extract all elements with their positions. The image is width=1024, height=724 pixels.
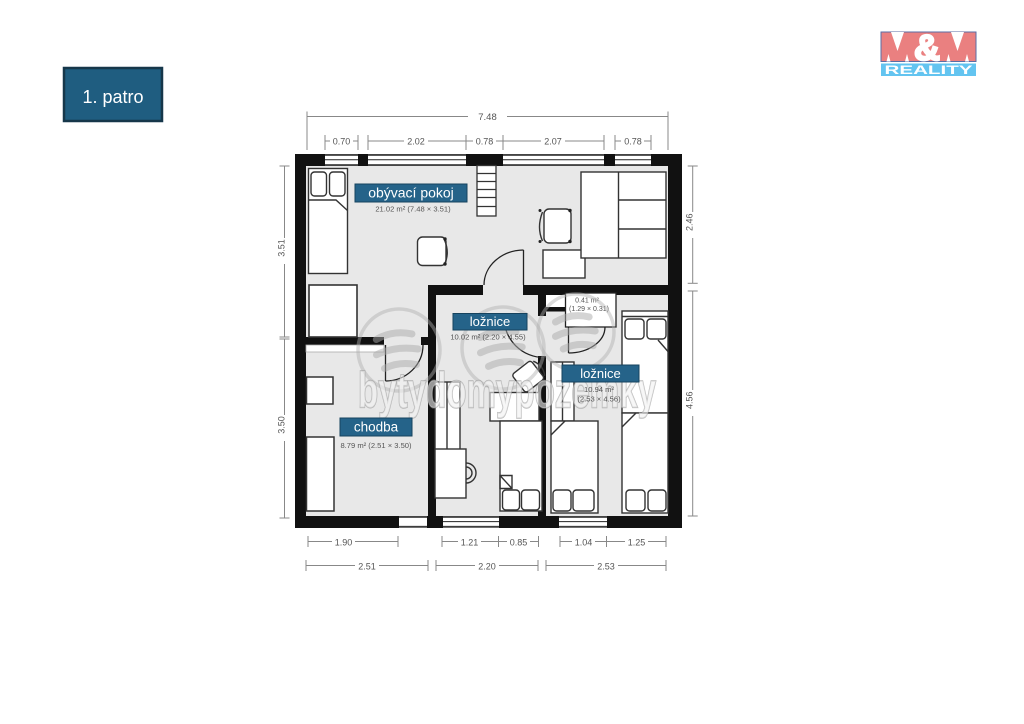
svg-text:1.90: 1.90 xyxy=(335,537,353,547)
svg-text:0.85: 0.85 xyxy=(510,537,528,547)
svg-text:REALITY: REALITY xyxy=(885,65,974,77)
svg-text:4.56: 4.56 xyxy=(685,391,695,409)
svg-text:10.02 m² (2.20 × 4.55): 10.02 m² (2.20 × 4.55) xyxy=(450,332,526,341)
svg-text:3.50: 3.50 xyxy=(277,416,287,434)
svg-text:2.20: 2.20 xyxy=(478,561,496,571)
svg-text:21.02 m² (7.48 × 3.51): 21.02 m² (7.48 × 3.51) xyxy=(375,204,451,213)
svg-text:1.25: 1.25 xyxy=(628,537,646,547)
svg-text:2.02: 2.02 xyxy=(407,136,425,146)
svg-text:ložnice: ložnice xyxy=(470,314,510,329)
svg-text:2.07: 2.07 xyxy=(544,136,562,146)
svg-text:0.78: 0.78 xyxy=(476,136,494,146)
svg-text:(2.53 × 4.56): (2.53 × 4.56) xyxy=(577,394,621,403)
svg-text:10.94 m²: 10.94 m² xyxy=(584,385,614,394)
svg-text:7.48: 7.48 xyxy=(478,112,497,123)
svg-text:&: & xyxy=(914,27,940,68)
svg-text:obývací pokoj: obývací pokoj xyxy=(368,185,454,201)
svg-text:8.79 m² (2.51 × 3.50): 8.79 m² (2.51 × 3.50) xyxy=(340,441,412,450)
svg-text:1.04: 1.04 xyxy=(575,537,593,547)
svg-text:1. patro: 1. patro xyxy=(82,87,143,107)
svg-text:chodba: chodba xyxy=(354,420,399,435)
svg-text:2.53: 2.53 xyxy=(597,561,615,571)
svg-text:2.51: 2.51 xyxy=(358,561,376,571)
svg-text:ložnice: ložnice xyxy=(580,366,620,381)
svg-text:0.78: 0.78 xyxy=(624,136,642,146)
svg-text:3.51: 3.51 xyxy=(277,239,287,257)
svg-text:1.21: 1.21 xyxy=(461,537,479,547)
svg-text:0.70: 0.70 xyxy=(333,136,351,146)
svg-text:2.46: 2.46 xyxy=(685,213,695,231)
